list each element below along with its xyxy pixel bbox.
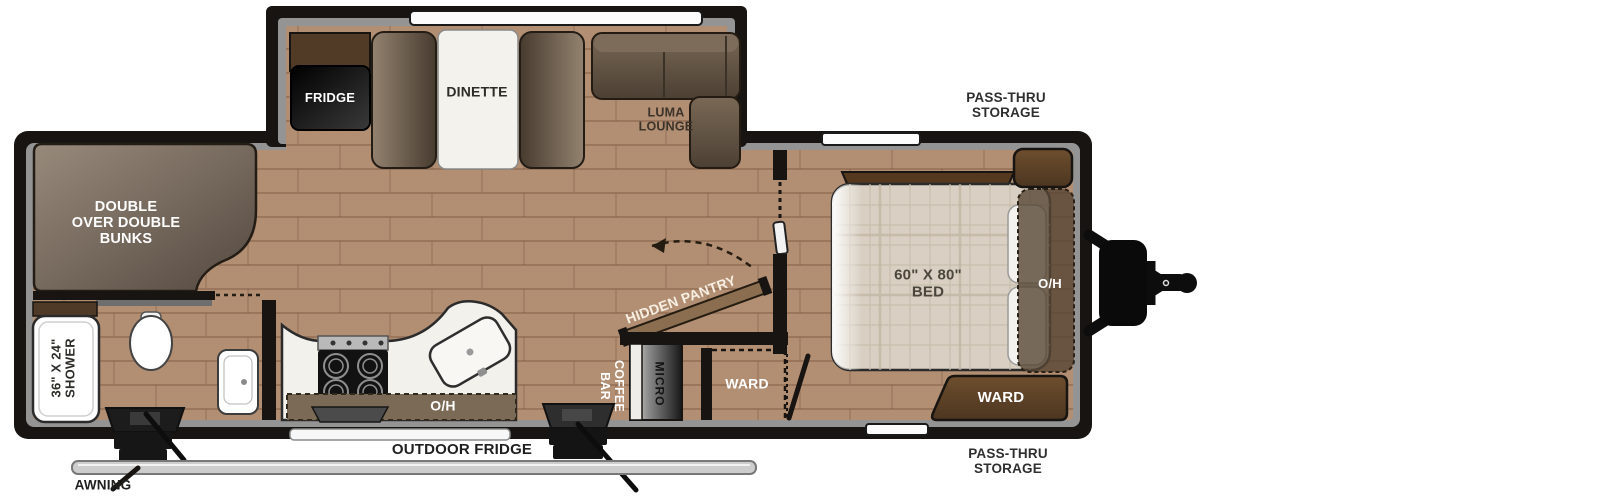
stove-knob (331, 341, 336, 346)
hitch-coupler (1177, 273, 1197, 293)
outdoor-fridge-label: OUTDOOR FRIDGE (392, 442, 532, 459)
microwave-face (630, 344, 642, 420)
luma-lounge-label: LUMA LOUNGE (639, 106, 694, 134)
micro-label: MICRO (652, 362, 665, 407)
ward-hall-wall (701, 348, 712, 420)
awning-label: AWNING (75, 479, 132, 494)
slideout-window (410, 11, 702, 25)
floorplan-drawing (0, 0, 1600, 497)
bath-kitchen-wall (262, 300, 276, 420)
ward-hall-label: WARD (725, 376, 769, 391)
fridge-label: FRIDGE (305, 91, 355, 105)
stove-knob (379, 341, 384, 346)
dinette-bench-left (372, 32, 436, 168)
dinette-label: DINETTE (446, 84, 507, 99)
dinette-bench-right (520, 32, 584, 168)
bath-shelf (33, 302, 97, 316)
bedroom-window-bottom (866, 424, 928, 435)
ward-bed-label: WARD (978, 390, 1025, 407)
awning-bar (72, 461, 756, 474)
bath-faucet (241, 379, 247, 385)
propane-tank (1099, 240, 1147, 326)
bedroom-window-top (822, 133, 920, 145)
stove-knob (363, 341, 368, 346)
shower-label: 36" X 24" SHOWER (50, 338, 79, 398)
kitchen-threshold (312, 407, 388, 422)
entry-step (549, 428, 607, 445)
outdoor-fridge-compartment (290, 429, 510, 440)
entry-step-tread (562, 409, 592, 421)
oh-kitchen-label: O/H (430, 398, 456, 413)
stove-knob (347, 341, 352, 346)
hitch (1089, 235, 1197, 331)
bunks-label: DOUBLE OVER DOUBLE BUNKS (72, 200, 181, 248)
pass-thru-bottom-label: PASS-THRU STORAGE (968, 447, 1048, 477)
bath-wall-trim (96, 300, 212, 306)
partition-upper (773, 150, 787, 180)
pass-thru-top-label: PASS-THRU STORAGE (966, 91, 1046, 121)
partition-lower (773, 254, 787, 354)
luma-lounge-chaise (690, 97, 740, 168)
stove-control-panel (318, 336, 388, 350)
coffee-bar-label: COFFEE BAR (597, 360, 625, 412)
floorplan-canvas: DOUBLE OVER DOUBLE BUNKS 36" X 24" SHOWE… (0, 0, 1600, 497)
luma-lounge-back (594, 34, 738, 52)
bed-label: 60" X 80" BED (894, 268, 962, 301)
toilet (130, 316, 172, 370)
oh-bed-label: O/H (1038, 277, 1062, 291)
bath-wall (33, 291, 215, 300)
nightstand (1014, 149, 1072, 187)
